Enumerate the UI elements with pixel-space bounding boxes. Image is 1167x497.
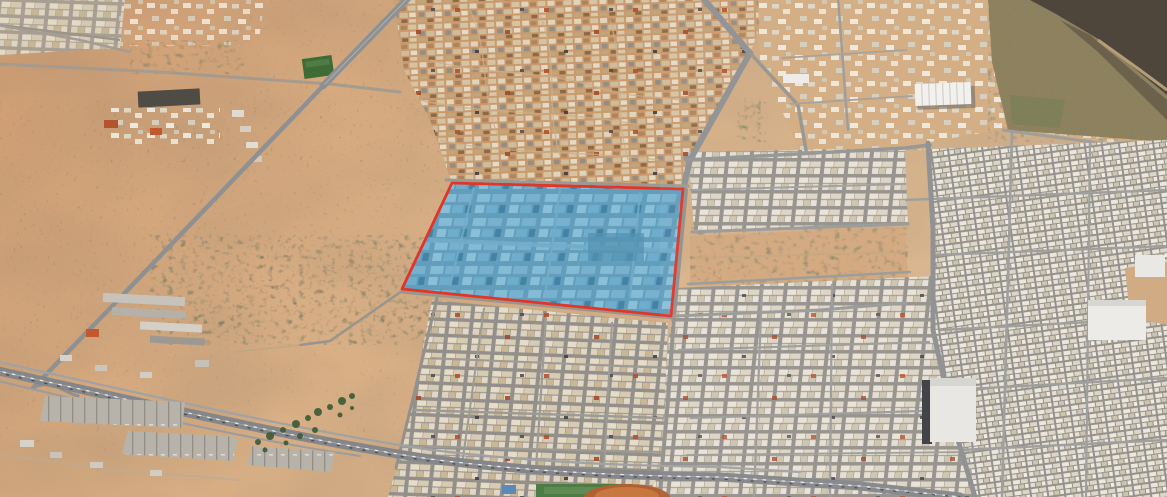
orange-roof-building	[86, 329, 99, 337]
satellite-map-viewport[interactable]	[0, 0, 1167, 497]
aerial-imagery	[0, 0, 1167, 497]
blue-canopy	[502, 485, 516, 494]
atmospheric-haze	[660, 0, 1167, 497]
